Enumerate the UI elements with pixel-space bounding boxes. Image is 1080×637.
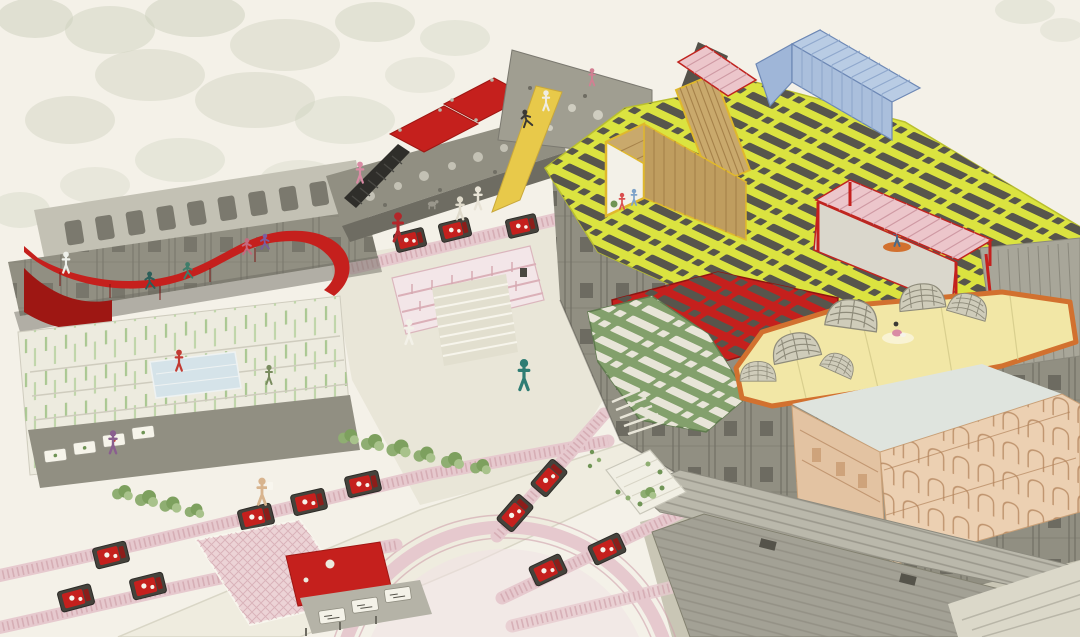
bin — [520, 268, 527, 277]
round-rug — [883, 242, 911, 252]
illustration-canvas — [0, 0, 1080, 637]
plant-pot — [611, 201, 618, 208]
illustration-page — [0, 0, 1080, 637]
roof-porthole — [326, 560, 335, 569]
shopping-bag — [267, 482, 273, 490]
roof-porthole-small — [304, 578, 309, 583]
left-complex — [8, 160, 382, 488]
